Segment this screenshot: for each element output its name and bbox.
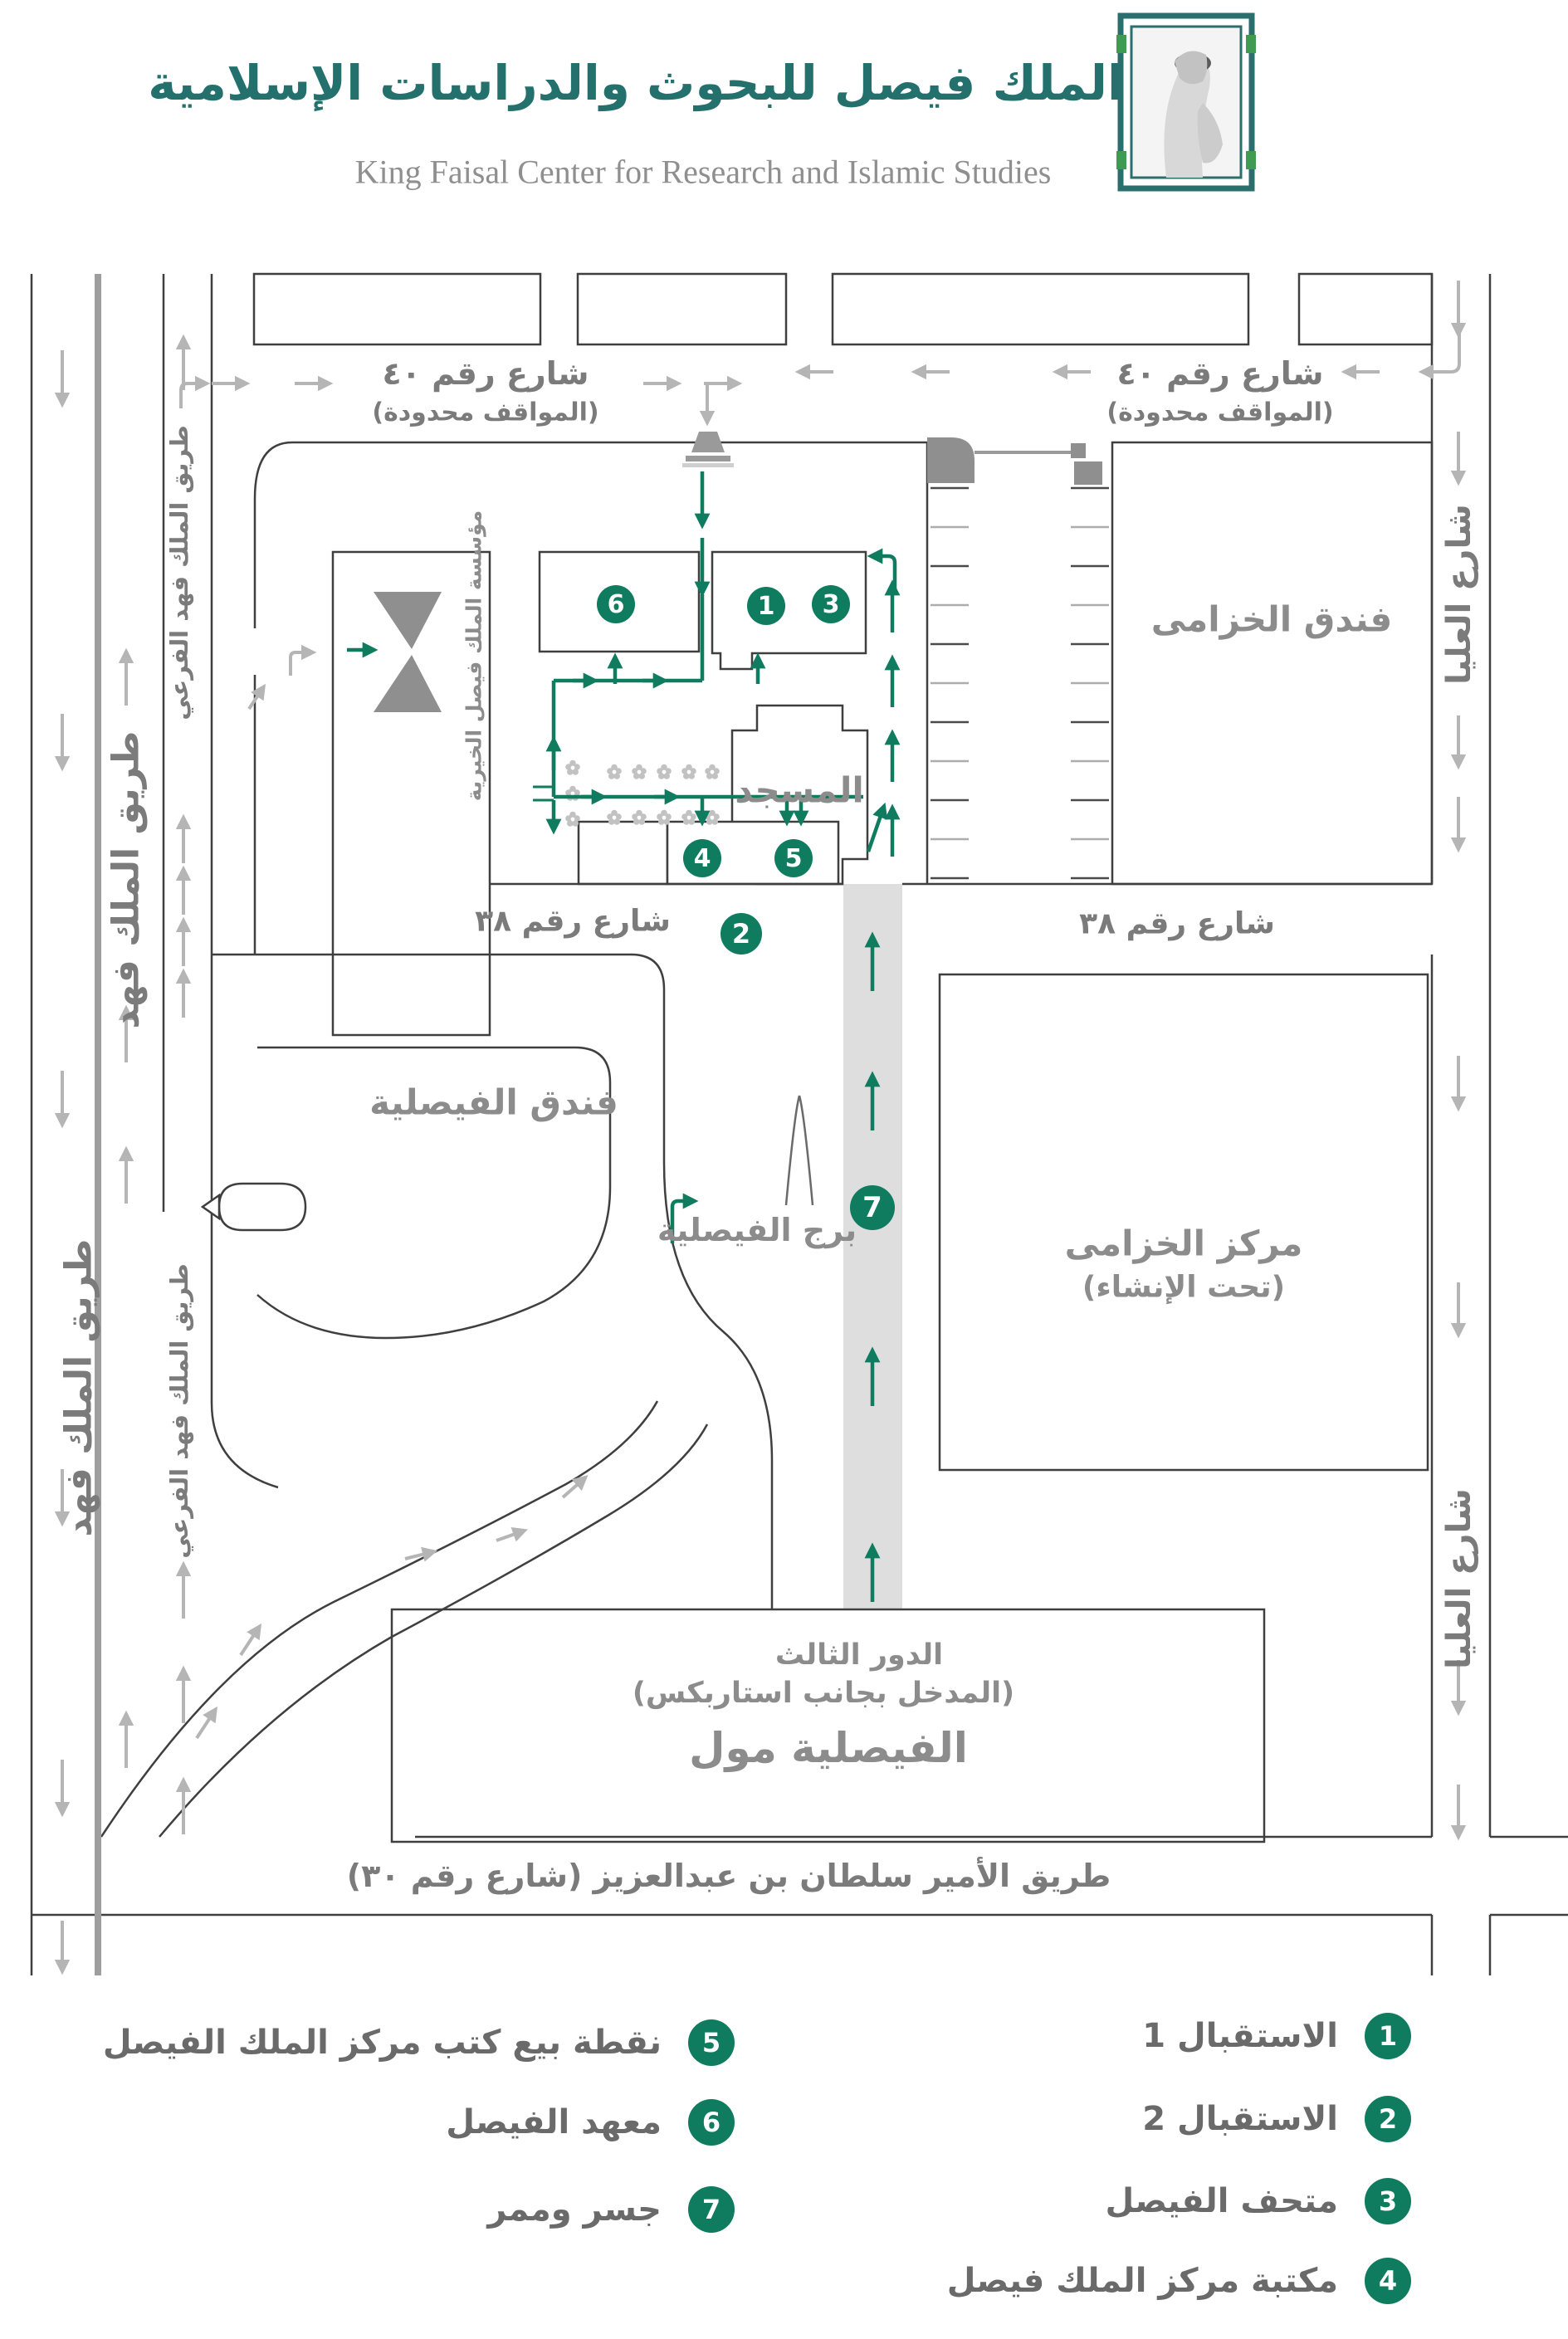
faisaliah-mall-label: الفيصلية مول bbox=[689, 1724, 968, 1772]
king-fahd-road-upper-label: طريق الملك فهد bbox=[105, 731, 148, 1029]
king-fahd-service-upper-label: طريق الملك فهد الفرعي bbox=[165, 425, 193, 720]
street38-right-label: شارع رقم ٣٨ bbox=[1079, 907, 1275, 941]
third-floor-label-line1: الدور الثالث bbox=[775, 1638, 943, 1672]
khozama-center-label-line1: مركز الخزامى bbox=[1065, 1223, 1303, 1264]
olaya-street-lower-label: شارع العليا bbox=[1440, 1488, 1478, 1669]
legend-label-1: الاستقبال 1 bbox=[1142, 2017, 1338, 2055]
legend-label-5: نقطة بيع كتب مركز الملك الفيصل bbox=[103, 2024, 662, 2062]
king-fahd-road-lower-label: طريق الملك فهد bbox=[58, 1239, 100, 1537]
map-marker-3: 3 bbox=[812, 585, 850, 623]
legend-circle-7: 7 bbox=[688, 2186, 735, 2233]
street38-left-label: شارع رقم ٣٨ bbox=[475, 905, 671, 939]
khozama-hotel-label: فندق الخزامى bbox=[1151, 599, 1393, 640]
legend-label-7: جسر وممر bbox=[487, 2190, 662, 2229]
olaya-street-upper-label: شارع العليا bbox=[1440, 504, 1478, 685]
faisaliah-tower-label: برج الفيصلية bbox=[657, 1212, 857, 1248]
foundation-label: مؤسسة الملك فيصل الخيرية bbox=[462, 510, 486, 801]
map-road-network bbox=[0, 0, 1568, 2339]
campus-gate-icon bbox=[682, 432, 734, 467]
legend-circle-3: 3 bbox=[1365, 2178, 1411, 2224]
legend-circle-4: 4 bbox=[1365, 2258, 1411, 2304]
khozama-center-label-line2: (تحت الإنشاء) bbox=[1082, 1271, 1285, 1305]
legend-circle-5: 5 bbox=[688, 2019, 735, 2066]
khozama-center-building bbox=[940, 974, 1428, 1470]
mosque-label: المسجد bbox=[735, 770, 864, 811]
third-floor-label-line2: (المدخل بجانب استاربكس) bbox=[633, 1677, 1014, 1710]
street40-left-note: (المواقف محدودة) bbox=[372, 398, 598, 427]
parking-stall-ticks bbox=[931, 488, 1109, 878]
map-marker-7: 7 bbox=[850, 1185, 895, 1230]
map-marker-2: 2 bbox=[720, 913, 762, 955]
map-marker-1: 1 bbox=[747, 587, 785, 625]
khozama-hotel-building bbox=[1112, 442, 1432, 884]
courtyard-trees bbox=[565, 760, 720, 827]
prince-sultan-road-label: طريق الأمير سلطان بن عبدالعزيز (شارع رقم… bbox=[347, 1858, 1111, 1894]
faisaliah-hotel-label: فندق الفيصلية bbox=[369, 1082, 618, 1123]
page-root: مركز الملك فيصل للبحوث والدراسات الإسلام… bbox=[0, 0, 1568, 2339]
legend-circle-1: 1 bbox=[1365, 2013, 1411, 2059]
parking-corner-block bbox=[927, 437, 975, 483]
legend-circle-2: 2 bbox=[1365, 2096, 1411, 2142]
legend-circle-6: 6 bbox=[688, 2099, 735, 2146]
legend-label-4: مكتبة مركز الملك فيصل bbox=[947, 2262, 1338, 2300]
legend-label-6: معهد الفيصل bbox=[446, 2103, 662, 2141]
building-outlines bbox=[254, 274, 1432, 1842]
map-marker-6: 6 bbox=[597, 585, 635, 623]
street40-right-note: (المواقف محدودة) bbox=[1106, 398, 1333, 427]
street40-left-label: شارع رقم ٤٠ bbox=[383, 355, 589, 392]
legend-label-3: متحف الفيصل bbox=[1106, 2182, 1338, 2220]
map-marker-4: 4 bbox=[683, 839, 721, 877]
street40-right-label: شارع رقم ٤٠ bbox=[1117, 355, 1324, 392]
parking-barrier-icon bbox=[975, 443, 1102, 485]
king-fahd-service-lower-label: طريق الملك فهد الفرعي bbox=[165, 1263, 193, 1559]
map-marker-5: 5 bbox=[774, 839, 813, 877]
faisaliah-tower-icon bbox=[786, 1096, 813, 1205]
legend-label-2: الاستقبال 2 bbox=[1142, 2100, 1338, 2138]
